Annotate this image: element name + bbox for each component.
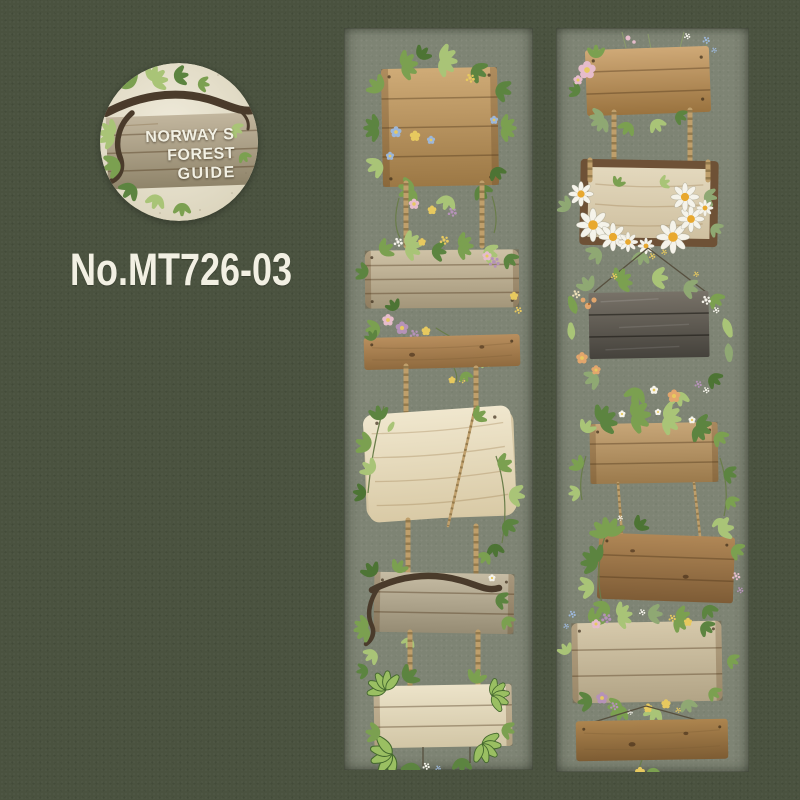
product-number: No.MT726-03 — [70, 244, 278, 296]
wooden-sign — [565, 395, 743, 530]
hanging-rope — [410, 632, 478, 686]
hanging-rope — [408, 520, 476, 576]
badge-title-line3: GUIDE — [146, 163, 236, 185]
tape-strip-right — [556, 28, 749, 772]
wooden-sign — [556, 599, 743, 727]
wooden-sign — [566, 32, 717, 140]
wooden-sign — [351, 555, 519, 681]
wooden-sign — [351, 402, 527, 568]
brand-badge: NORWAY S FOREST GUIDE — [100, 63, 258, 221]
tape-strip-right-illustration — [556, 28, 749, 772]
wooden-sign — [361, 41, 517, 238]
wooden-sign — [576, 719, 729, 772]
tape-strip-left-illustration — [344, 28, 533, 770]
wooden-sign — [360, 660, 519, 770]
product-image: NORWAY S FOREST GUIDE No.MT726-03 — [0, 0, 800, 800]
wooden-sign — [574, 511, 749, 623]
wooden-sign — [556, 159, 727, 269]
badge-title: NORWAY S FOREST GUIDE — [145, 125, 236, 185]
hanging-rope — [618, 483, 700, 536]
wooden-sign — [566, 262, 736, 409]
wooden-sign — [362, 327, 521, 385]
tape-strip-left — [344, 28, 533, 770]
